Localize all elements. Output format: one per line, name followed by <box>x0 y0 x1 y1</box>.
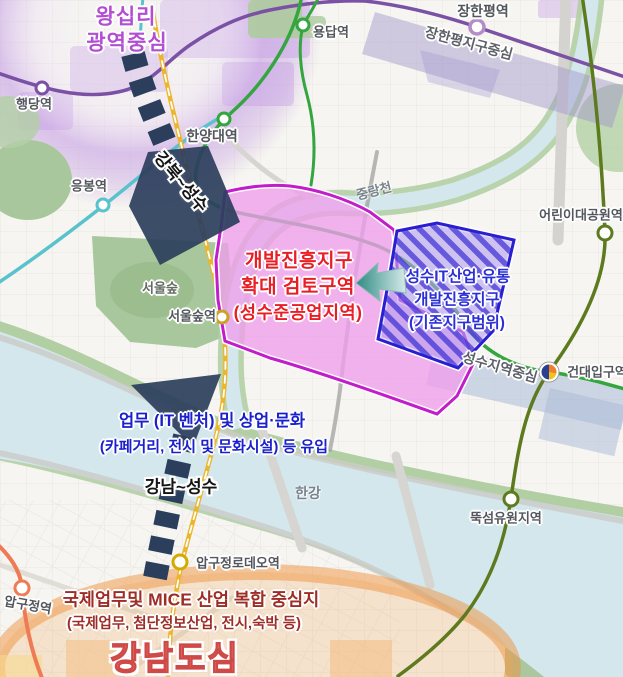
seongsu-development-map: 왕십리 광역중심 행당역 한양대역 응봉역 용답역 장한평역 어린이대공원역 건… <box>0 0 623 677</box>
seoul-forest-label: 서울숲 <box>142 282 178 295</box>
station-label-haengdang: 행당역 <box>16 98 52 111</box>
station-apgujeong <box>15 581 29 595</box>
transfer-station-icon <box>540 363 559 382</box>
station-label-janghanpyeong: 장한평역 <box>457 4 509 18</box>
flow-label-line2: (카페거리, 전시 및 문화시설) 등 유입 <box>100 440 328 455</box>
station-eungbong <box>97 199 109 211</box>
station-hanyang <box>218 113 230 125</box>
station-label-konkuk: 건대입구역 <box>567 366 623 379</box>
pink-zone-label-line2: 확대 검토구역 <box>241 278 355 297</box>
gangnam-seongsu-label: 강남~성수 <box>145 479 218 496</box>
gangnam-downtown-label: 강남도심 <box>110 642 239 675</box>
flow-label-line1: 업무 (IT 벤처) 및 상업·문화 <box>119 413 305 430</box>
blue-zone-label-line3: (기존지구범위) <box>409 315 505 331</box>
blue-zone-label-line2: 개발진흥지구 <box>414 292 500 308</box>
station-yongdap <box>297 19 309 31</box>
station-label-childrens-park: 어린이대공원역 <box>539 209 623 222</box>
hangang-label: 한강 <box>295 486 321 500</box>
blue-zone-label-line1: 성수IT산업·유통 <box>406 269 511 285</box>
station-haengdang <box>36 82 48 94</box>
mice-label-line2: (국제업무, 첨단정보산업, 전시,숙박 등) <box>67 617 301 632</box>
station-label-seoul-forest: 서울숲역 <box>168 310 216 323</box>
wangsimni-label-line1: 왕십리 <box>96 7 157 28</box>
mice-label-line1: 국제업무및 MICE 산업 복합 중심지 <box>63 591 319 609</box>
station-label-apgujeong-rodeo: 압구정로데오역 <box>196 557 280 570</box>
station-ttukseom-resort <box>504 492 518 506</box>
station-label-yongdap: 용답역 <box>313 26 349 39</box>
pink-zone-label-line3: (성수준공업지역) <box>234 304 363 322</box>
station-label-ttukseom-resort: 뚝섬유원지역 <box>470 512 542 525</box>
station-janghanpyeong <box>470 20 484 34</box>
station-label-hanyang: 한양대역 <box>186 129 238 143</box>
pink-zone-label-line1: 개발진흥지구 <box>245 252 353 271</box>
station-seoul-forest <box>216 311 228 323</box>
station-apgujeong-rodeo <box>173 555 187 569</box>
map-canvas <box>0 0 623 677</box>
wangsimni-label-line2: 광역중심 <box>86 33 167 54</box>
station-childrens-park <box>598 226 612 240</box>
station-label-eungbong: 응봉역 <box>71 180 107 193</box>
